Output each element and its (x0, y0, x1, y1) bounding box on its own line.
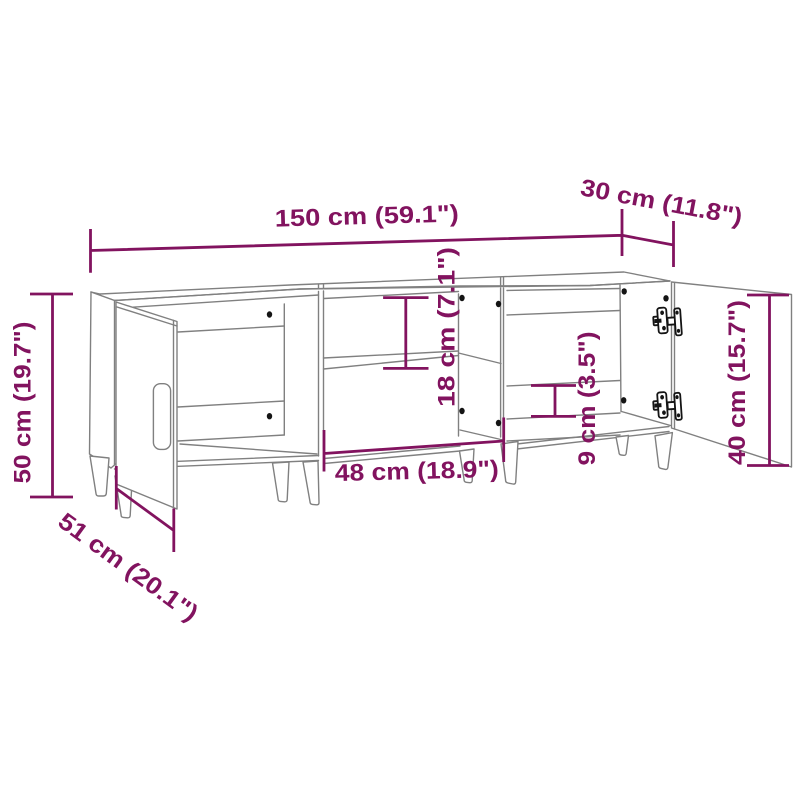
svg-text:18 cm (7.1"): 18 cm (7.1") (434, 247, 461, 407)
svg-text:51 cm (20.1"): 51 cm (20.1") (53, 508, 203, 627)
svg-text:9 cm (3.5"): 9 cm (3.5") (574, 332, 601, 466)
svg-text:30 cm (11.8"): 30 cm (11.8") (578, 174, 744, 230)
svg-text:40 cm (15.7"): 40 cm (15.7") (724, 300, 751, 465)
svg-text:48 cm (18.9"): 48 cm (18.9") (334, 456, 499, 487)
svg-text:50 cm (19.7"): 50 cm (19.7") (10, 322, 37, 484)
svg-text:150 cm (59.1"): 150 cm (59.1") (274, 200, 459, 232)
